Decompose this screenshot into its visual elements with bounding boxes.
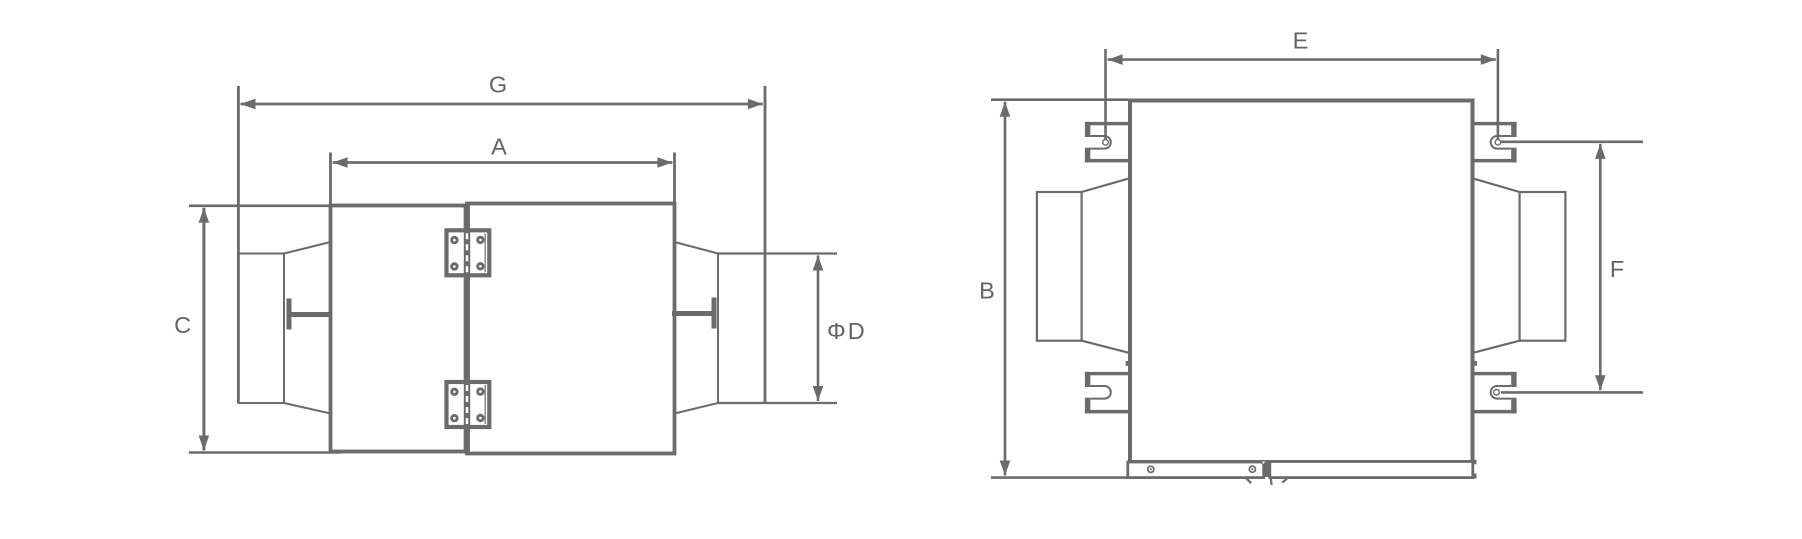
svg-text:B: B bbox=[979, 278, 995, 304]
svg-text:C: C bbox=[174, 312, 191, 338]
svg-text:E: E bbox=[1293, 28, 1309, 54]
svg-text:ΦD: ΦD bbox=[827, 318, 867, 344]
svg-text:A: A bbox=[491, 134, 507, 160]
svg-text:F: F bbox=[1610, 256, 1624, 282]
svg-text:G: G bbox=[489, 72, 507, 98]
